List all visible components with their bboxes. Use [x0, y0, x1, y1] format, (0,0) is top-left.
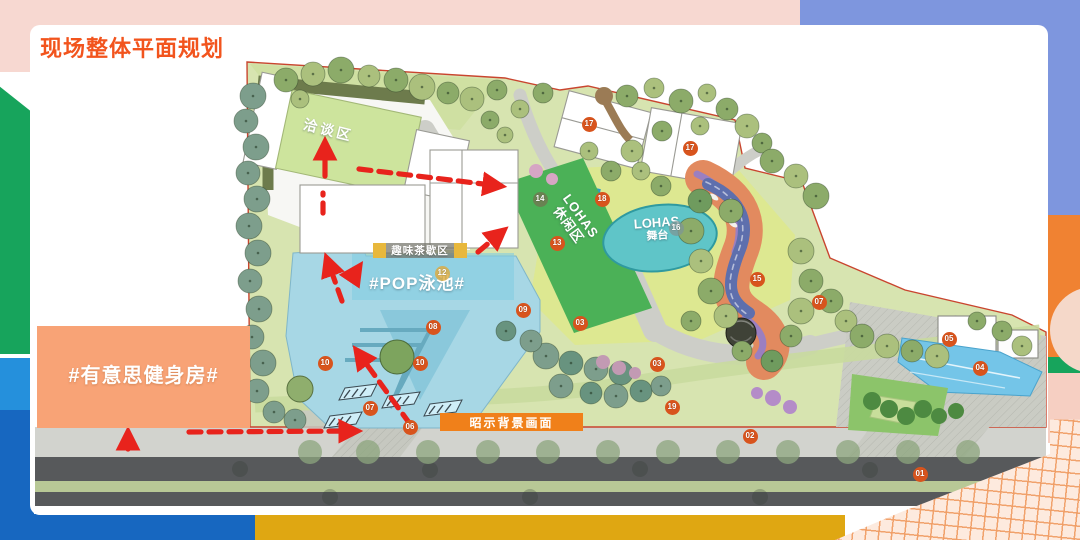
plan-marker-17: 17	[683, 141, 698, 156]
plan-marker-01: 01	[913, 467, 928, 482]
plan-marker-19: 19	[665, 400, 680, 415]
plan-marker-05: 05	[942, 332, 957, 347]
label-gym: #有意思健身房#	[68, 359, 218, 388]
plan-marker-13: 13	[550, 236, 565, 251]
plan-marker-10: 10	[413, 356, 428, 371]
plan-marker-10: 10	[318, 356, 333, 371]
page-title: 现场整体平面规划	[40, 31, 224, 63]
plan-marker-04: 04	[973, 361, 988, 376]
plan-marker-03: 03	[573, 316, 588, 331]
site-plan	[0, 0, 1080, 540]
label-tea-break-area: 趣味茶歇区	[373, 243, 467, 258]
plan-marker-16: 16	[669, 221, 684, 236]
gym-callout-box: #有意思健身房#	[37, 326, 250, 428]
plan-marker-06: 06	[403, 420, 418, 435]
plan-marker-02: 02	[743, 429, 758, 444]
plan-marker-14: 14	[533, 192, 548, 207]
signage-backdrop-box: 昭示背景画面	[440, 413, 583, 431]
label-pop-pool: #POP泳池#	[352, 269, 482, 294]
plan-marker-07: 07	[812, 295, 827, 310]
tea-bar-left-accent	[373, 243, 386, 258]
plan-marker-15: 15	[750, 272, 765, 287]
plan-marker-03: 03	[650, 357, 665, 372]
slide-canvas: 现场整体平面规划 洽谈区 LOHAS 休闲区 LOHAS 舞台 趣味茶歇区 #P…	[0, 0, 1080, 540]
tea-bar-right-accent	[454, 243, 467, 258]
plan-marker-12: 12	[435, 266, 450, 281]
plan-marker-09: 09	[516, 303, 531, 318]
plan-marker-08: 08	[426, 320, 441, 335]
plan-marker-17: 17	[582, 117, 597, 132]
plan-marker-07: 07	[363, 401, 378, 416]
plan-marker-18: 18	[595, 192, 610, 207]
